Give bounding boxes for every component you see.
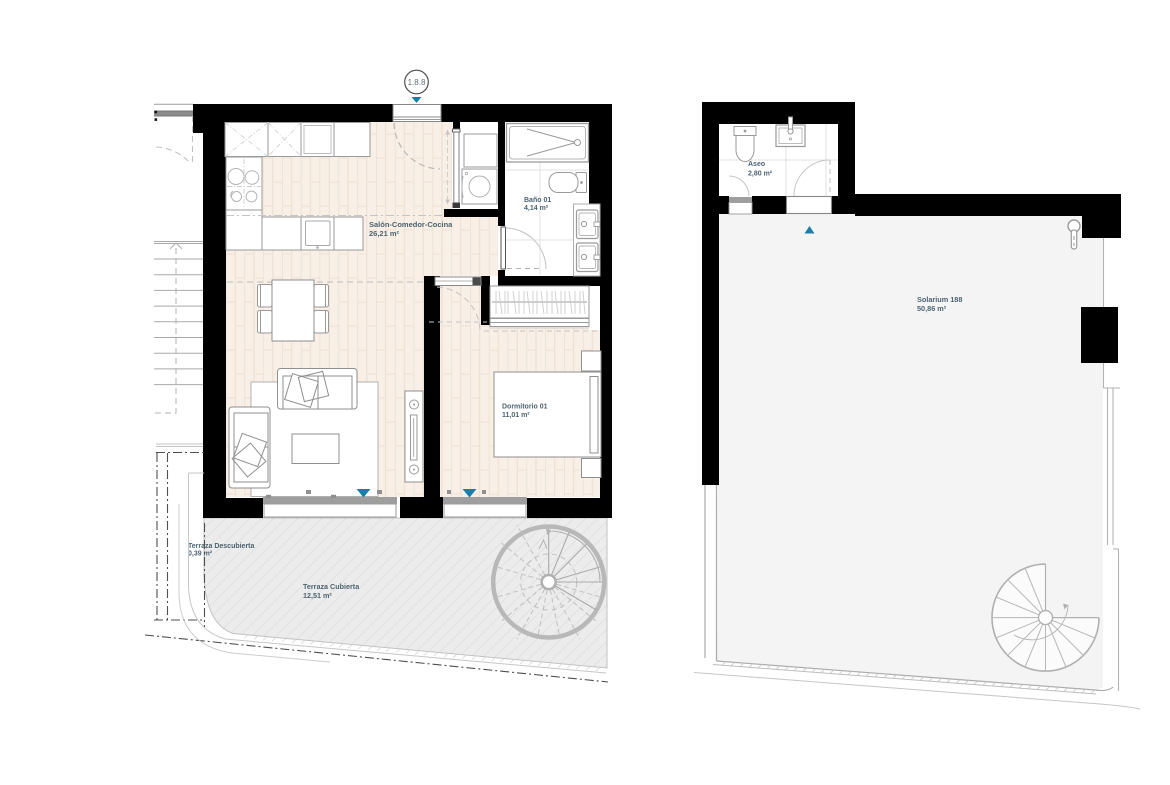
svg-text:4,14 m²: 4,14 m² [524, 205, 549, 212]
svg-text:0,39 m²: 0,39 m² [188, 551, 213, 558]
svg-text:50,86 m²: 50,86 m² [917, 304, 947, 313]
svg-text:12,51 m²: 12,51 m² [303, 591, 332, 600]
svg-text:Solarium 188: Solarium 188 [917, 295, 962, 304]
svg-text:Terraza Cubierta: Terraza Cubierta [303, 582, 360, 591]
svg-text:Dormitorio 01: Dormitorio 01 [502, 404, 548, 411]
svg-text:11,01 m²: 11,01 m² [502, 412, 530, 419]
svg-text:Aseo: Aseo [748, 161, 765, 168]
svg-text:26,21 m²: 26,21 m² [369, 229, 400, 238]
svg-text:Baño 01: Baño 01 [524, 197, 551, 204]
svg-text:Terraza Descubierta: Terraza Descubierta [188, 543, 255, 550]
svg-text:2,80 m²: 2,80 m² [748, 171, 773, 178]
svg-text:Salón-Comedor-Cocina: Salón-Comedor-Cocina [369, 220, 453, 229]
svg-text:1.8.8: 1.8.8 [408, 78, 426, 87]
